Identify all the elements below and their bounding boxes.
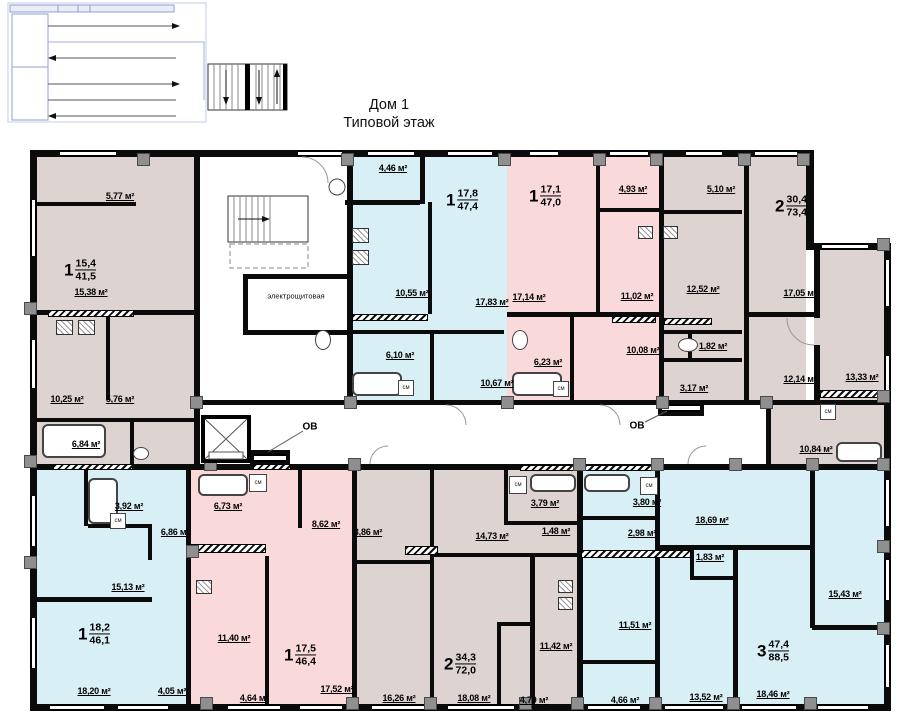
apartment-label: 347,488,5 — [757, 638, 789, 663]
apartment-label: 234,372,0 — [444, 651, 476, 676]
wall — [812, 625, 884, 630]
pilaster — [137, 153, 150, 166]
apartment-areas: 47,488,5 — [769, 638, 789, 663]
room-area-label: 3,92 м² — [115, 501, 143, 511]
wall — [345, 200, 420, 205]
wall — [581, 660, 657, 664]
apartment-label: 230,473,4 — [775, 193, 807, 218]
room-area-label: 13,52 м² — [689, 692, 722, 702]
apartment-total-area: 72,0 — [456, 665, 476, 677]
bathtub-icon — [352, 372, 402, 396]
pilaster — [501, 396, 514, 409]
wall — [194, 150, 200, 470]
wall — [766, 404, 771, 464]
room-area-label: 18,46 м² — [756, 689, 789, 699]
hatched-wall — [53, 464, 133, 470]
washing-machine-icon: см — [509, 476, 527, 494]
window — [742, 704, 796, 711]
room — [814, 250, 884, 406]
stove-icon — [78, 320, 95, 335]
room-area-label: 4,64 м² — [240, 693, 268, 703]
room-area-label: 2,98 м² — [628, 528, 656, 538]
floor-plan-canvas: смсмсмсмсмсмсм5,77 м²15,38 м²10,25 м²5,7… — [0, 0, 900, 720]
window — [665, 704, 723, 711]
bathtub-icon — [530, 474, 576, 492]
room-area-label: 18,20 м² — [77, 686, 110, 696]
pilaster — [346, 697, 359, 710]
room-area-label: 15,38 м² — [74, 287, 107, 297]
room-area-label: 18,69 м² — [695, 515, 728, 525]
apartment-rooms-count: 1 — [446, 190, 455, 210]
wall — [194, 400, 884, 405]
room-area-label: 17,83 м² — [475, 297, 508, 307]
window — [588, 704, 640, 711]
pilaster — [186, 545, 199, 558]
hatched-wall — [612, 316, 656, 323]
wall — [430, 334, 434, 404]
pilaster — [877, 540, 890, 553]
window — [755, 150, 797, 157]
wall — [36, 418, 194, 422]
pilaster — [498, 153, 511, 166]
room-area-label: 11,40 м² — [218, 633, 251, 643]
room-area-label: 6,73 м² — [214, 501, 242, 511]
apartment-total-area: 47,0 — [541, 197, 561, 209]
window — [30, 200, 37, 256]
washing-machine-icon: см — [110, 513, 126, 529]
pilaster — [573, 458, 586, 471]
wall — [690, 576, 737, 580]
window — [30, 340, 37, 388]
room-area-label: 11,02 м² — [621, 291, 654, 301]
hatched-wall — [253, 464, 291, 470]
wall — [497, 622, 534, 626]
vent-duct-label: ОВ — [303, 422, 318, 433]
apartment-areas: 17,546,4 — [296, 642, 316, 667]
window — [300, 704, 342, 711]
room-area-label: 1,82 м² — [699, 341, 727, 351]
window — [818, 704, 868, 711]
window — [448, 150, 492, 157]
wall — [430, 470, 434, 704]
washing-machine-icon: см — [640, 477, 658, 495]
stove-icon — [352, 228, 369, 243]
wall — [350, 330, 504, 334]
apartment-living-area: 30,4 — [787, 193, 807, 206]
hatched-wall — [405, 546, 438, 555]
apartment-living-area: 17,5 — [296, 642, 316, 655]
pilaster — [760, 396, 773, 409]
hatched-wall — [188, 544, 266, 553]
pilaster — [651, 458, 664, 471]
room-area-label: 1,83 м² — [696, 552, 724, 562]
wall — [596, 156, 600, 312]
wall — [659, 150, 664, 404]
wall — [352, 470, 357, 704]
apartment-label: 117,546,4 — [284, 642, 316, 667]
room-area-label: 5,10 м² — [707, 184, 735, 194]
wall — [884, 243, 891, 711]
room-area-label: 11,51 м² — [619, 620, 652, 630]
wall — [356, 560, 430, 564]
wall — [420, 156, 425, 204]
washing-machine-icon: см — [398, 380, 414, 396]
apartment-total-area: 46,4 — [296, 656, 316, 668]
wall — [148, 524, 152, 560]
window — [60, 150, 116, 157]
room-area-label: 11,42 м² — [540, 641, 573, 651]
apartment-label: 117,147,0 — [529, 183, 561, 208]
stove-icon — [638, 226, 653, 239]
washing-machine-icon: см — [249, 474, 267, 492]
apartment-total-area: 88,5 — [769, 652, 789, 664]
wall — [243, 274, 353, 279]
pilaster — [877, 622, 890, 635]
apartment-rooms-count: 2 — [775, 196, 784, 216]
pilaster — [649, 697, 662, 710]
apartment-areas: 34,372,0 — [456, 651, 476, 676]
apartment-living-area: 47,4 — [769, 638, 789, 651]
wall — [577, 470, 583, 704]
apartment-living-area: 34,3 — [456, 651, 476, 664]
wall — [504, 521, 578, 525]
apartment-living-area: 15,4 — [76, 257, 96, 270]
room-area-label: 13,33 м² — [845, 372, 878, 382]
window — [884, 260, 891, 306]
hatched-wall — [581, 550, 691, 558]
room-area-label: 8,62 м² — [312, 519, 340, 529]
wall — [581, 516, 657, 520]
wall — [810, 470, 815, 628]
bathtub-icon — [836, 442, 882, 462]
pilaster — [877, 238, 890, 251]
pilaster — [727, 697, 740, 710]
toilet-icon — [315, 330, 331, 350]
room-area-label: 12,14 м² — [783, 374, 816, 384]
hatched-wall — [520, 465, 655, 471]
wall — [814, 250, 820, 318]
room-area-label: 12,52 м² — [686, 284, 719, 294]
apartment-living-area: 18,2 — [90, 621, 110, 634]
apartment-areas: 30,473,4 — [787, 193, 807, 218]
garbage-chute-icon — [329, 179, 345, 195]
room-area-label: 5,77 м² — [106, 191, 134, 201]
room-area-label: 10,67 м² — [480, 378, 513, 388]
pilaster — [204, 458, 217, 471]
exterior-staircase — [208, 64, 287, 110]
apartment-label: 117,847,4 — [446, 187, 478, 212]
wall — [30, 464, 891, 470]
hatched-wall — [352, 314, 428, 321]
wall — [36, 202, 136, 206]
washing-machine-icon: см — [820, 404, 836, 420]
window — [884, 480, 891, 526]
plan-title-line2: Типовой этаж — [299, 114, 479, 132]
room-area-label: 3,86 м² — [354, 527, 382, 537]
window — [530, 150, 558, 157]
toilet-icon — [133, 447, 149, 460]
stove-icon — [352, 250, 369, 265]
stove-icon — [558, 597, 573, 610]
room-area-label: 10,25 м² — [50, 394, 83, 404]
window — [884, 560, 891, 600]
apartment-total-area: 73,4 — [787, 207, 807, 219]
washing-machine-icon: см — [553, 381, 569, 397]
wall — [430, 553, 578, 557]
wall — [663, 330, 742, 334]
apartment-rooms-count: 1 — [529, 186, 538, 206]
apartment-areas: 18,246,1 — [90, 621, 110, 646]
room-area-label: 6,23 м² — [534, 357, 562, 367]
room-area-label: 3,17 м² — [680, 383, 708, 393]
room-area-label: 15,43 м² — [828, 589, 861, 599]
wall — [106, 314, 110, 400]
apartment-rooms-count: 1 — [284, 645, 293, 665]
apartment-living-area: 17,1 — [541, 183, 561, 196]
apartment-rooms-count: 1 — [64, 260, 73, 280]
bathtub-icon — [198, 474, 248, 496]
room-area-label: 5,76 м² — [106, 394, 134, 404]
pilaster — [190, 396, 203, 409]
toilet-icon — [678, 338, 698, 352]
window — [372, 704, 426, 711]
stove-icon — [56, 320, 73, 335]
pilaster — [806, 458, 819, 471]
plan-title: Дом 1 Типовой этаж — [299, 96, 479, 132]
room-area-label: 10,08 м² — [626, 345, 659, 355]
window — [686, 150, 722, 157]
window — [118, 704, 168, 711]
room-area-label: 4,66 м² — [611, 695, 639, 705]
wall — [504, 470, 508, 524]
room-area-label: 10,55 м² — [395, 288, 428, 298]
toilet-icon — [512, 330, 528, 350]
pilaster — [341, 153, 354, 166]
wall — [655, 554, 660, 710]
hatched-wall — [664, 318, 712, 325]
pilaster — [738, 153, 751, 166]
wall — [265, 556, 269, 704]
apartment-total-area: 46,1 — [90, 635, 110, 647]
room-area-label: 17,52 м² — [320, 684, 353, 694]
room-area-label: 16,26 м² — [382, 693, 415, 703]
apartment-areas: 17,147,0 — [541, 183, 561, 208]
pilaster — [24, 302, 37, 315]
hatched-wall — [820, 390, 884, 398]
window — [50, 704, 104, 711]
pilaster — [797, 153, 810, 166]
room-area-label: 15,13 м² — [111, 582, 144, 592]
room-area-label: 4,93 м² — [619, 184, 647, 194]
wall — [186, 470, 191, 710]
apartment-rooms-count: 1 — [78, 624, 87, 644]
window — [610, 150, 648, 157]
window — [368, 150, 414, 157]
pilaster — [24, 556, 37, 569]
window — [448, 704, 514, 711]
wall — [243, 279, 248, 330]
wall — [428, 202, 432, 314]
pilaster — [650, 153, 663, 166]
window — [884, 645, 891, 687]
apartment-total-area: 41,5 — [76, 271, 96, 283]
wall — [347, 150, 353, 404]
wall — [747, 312, 814, 317]
apartment-label: 118,246,1 — [78, 621, 110, 646]
pilaster — [877, 458, 890, 471]
apartment-areas: 15,441,5 — [76, 257, 96, 282]
pilaster — [729, 458, 742, 471]
stove-icon — [663, 226, 678, 239]
room-area-label: 17,14 м² — [512, 292, 545, 302]
wall — [497, 625, 501, 705]
pilaster — [24, 455, 37, 468]
apartment-areas: 17,847,4 — [458, 187, 478, 212]
pilaster — [348, 458, 361, 471]
pilaster — [593, 153, 606, 166]
stove-icon — [196, 580, 212, 594]
stove-icon — [558, 580, 573, 593]
plan-title-line1: Дом 1 — [299, 96, 479, 114]
wall — [744, 150, 749, 404]
room-area-label: 4,46 м² — [379, 163, 407, 173]
apartment-rooms-count: 3 — [757, 641, 766, 661]
apartment-label: 115,441,5 — [64, 257, 96, 282]
wall — [663, 210, 742, 214]
window — [30, 496, 37, 546]
room-area-label: 18,08 м² — [457, 693, 490, 703]
vent-duct-label: ОВ — [630, 421, 645, 432]
window — [254, 454, 286, 462]
pilaster — [571, 697, 584, 710]
room-area-label: 6,10 м² — [386, 350, 414, 360]
pilaster — [804, 697, 817, 710]
pilaster — [344, 396, 357, 409]
interior-staircase — [228, 196, 308, 268]
wall — [733, 548, 738, 710]
room-area-label: 4,05 м² — [158, 686, 186, 696]
apartment-living-area: 17,8 — [458, 187, 478, 200]
key-plan-schematic — [8, 3, 206, 122]
wall — [596, 208, 659, 212]
window — [228, 704, 280, 711]
wall — [130, 422, 134, 464]
duct-leader-lines — [268, 411, 667, 452]
pilaster — [424, 697, 437, 710]
pilaster — [200, 697, 213, 710]
wall — [570, 316, 574, 404]
pilaster — [877, 390, 890, 403]
wall — [298, 470, 302, 528]
room-area-label: 10,84 м² — [799, 444, 832, 454]
room-area-label: 6,86 м² — [161, 527, 189, 537]
elevator-icon — [203, 417, 249, 461]
window — [822, 243, 868, 250]
apartment-rooms-count: 2 — [444, 654, 453, 674]
window — [30, 618, 37, 668]
room-area-label: 3,80 м² — [633, 497, 661, 507]
room-area-label: 1,48 м² — [542, 526, 570, 536]
wall — [530, 556, 535, 710]
utility-room-label: электрощитовая — [267, 292, 324, 301]
bathtub-icon — [584, 474, 630, 492]
hatched-wall — [48, 310, 134, 317]
wall — [30, 597, 152, 602]
room-area-label: 17,05 м² — [783, 288, 816, 298]
room-area-label: 14,73 м² — [475, 531, 508, 541]
pilaster — [656, 396, 669, 409]
apartment-total-area: 47,4 — [458, 201, 478, 213]
wall — [243, 330, 353, 335]
room-area-label: 3,79 м² — [531, 498, 559, 508]
wall — [663, 358, 742, 362]
room-area-label: 4,79 м² — [520, 695, 548, 705]
room-area-label: 6,84 м² — [72, 439, 100, 449]
window — [298, 150, 342, 157]
